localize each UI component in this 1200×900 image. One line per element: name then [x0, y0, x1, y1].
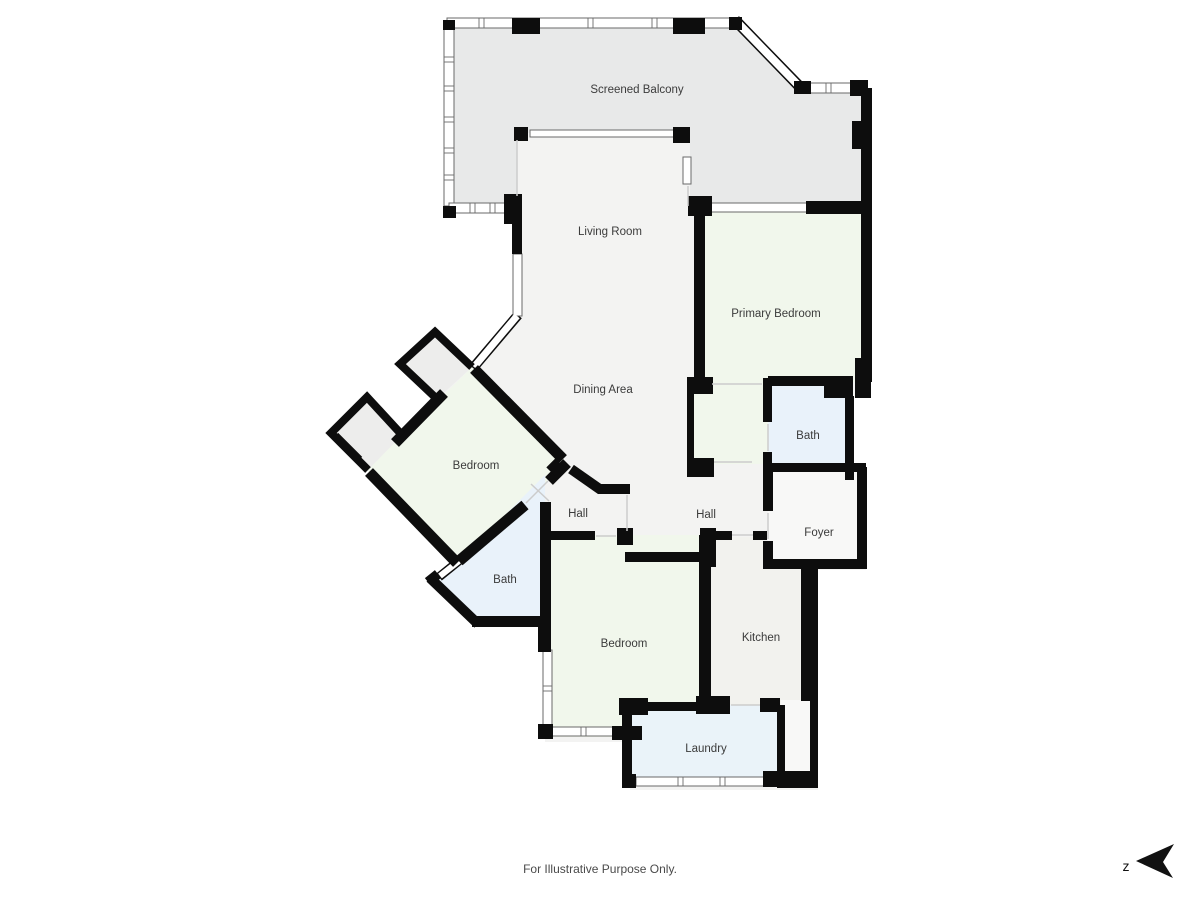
floor-plan-svg: Screened Balcony Living Room Primary Bed…	[0, 0, 1200, 900]
label-primary-bedroom: Primary Bedroom	[731, 308, 820, 320]
label-bath-west: Bath	[493, 574, 517, 586]
label-hall-west: Hall	[568, 508, 588, 520]
living-left-window	[513, 254, 522, 316]
balcony-window-left	[444, 24, 454, 206]
label-hall-east: Hall	[696, 509, 716, 521]
living-side-window	[683, 157, 691, 184]
primary-bedroom-floor	[700, 208, 868, 382]
primary-top-window	[707, 203, 807, 212]
label-bedroom-lower: Bedroom	[601, 638, 648, 650]
balcony-window-bottomleft	[449, 203, 507, 213]
foyer-floor	[768, 467, 866, 565]
bedroom-lower-bottom-window	[551, 727, 615, 736]
label-bath-primary: Bath	[796, 430, 820, 442]
label-foyer: Foyer	[804, 527, 834, 539]
label-screened-balcony: Screened Balcony	[590, 84, 684, 96]
label-bedroom-upper: Bedroom	[453, 460, 500, 472]
label-living-room: Living Room	[578, 226, 642, 238]
balcony-window-topright	[806, 83, 852, 93]
north-arrow-icon	[1136, 844, 1174, 878]
bedroom-lower-left-window	[543, 650, 552, 726]
living-balcony-window	[530, 130, 675, 137]
compass: z	[1123, 844, 1175, 878]
disclaimer-text: For Illustrative Purpose Only.	[523, 862, 677, 876]
label-dining-area: Dining Area	[573, 384, 633, 396]
pantry-floor	[781, 700, 811, 775]
label-kitchen: Kitchen	[742, 632, 780, 644]
label-laundry: Laundry	[685, 743, 727, 755]
compass-letter: z	[1123, 858, 1130, 874]
laundry-bottom-window	[636, 777, 765, 786]
floor-plan-page: Screened Balcony Living Room Primary Bed…	[0, 0, 1200, 900]
